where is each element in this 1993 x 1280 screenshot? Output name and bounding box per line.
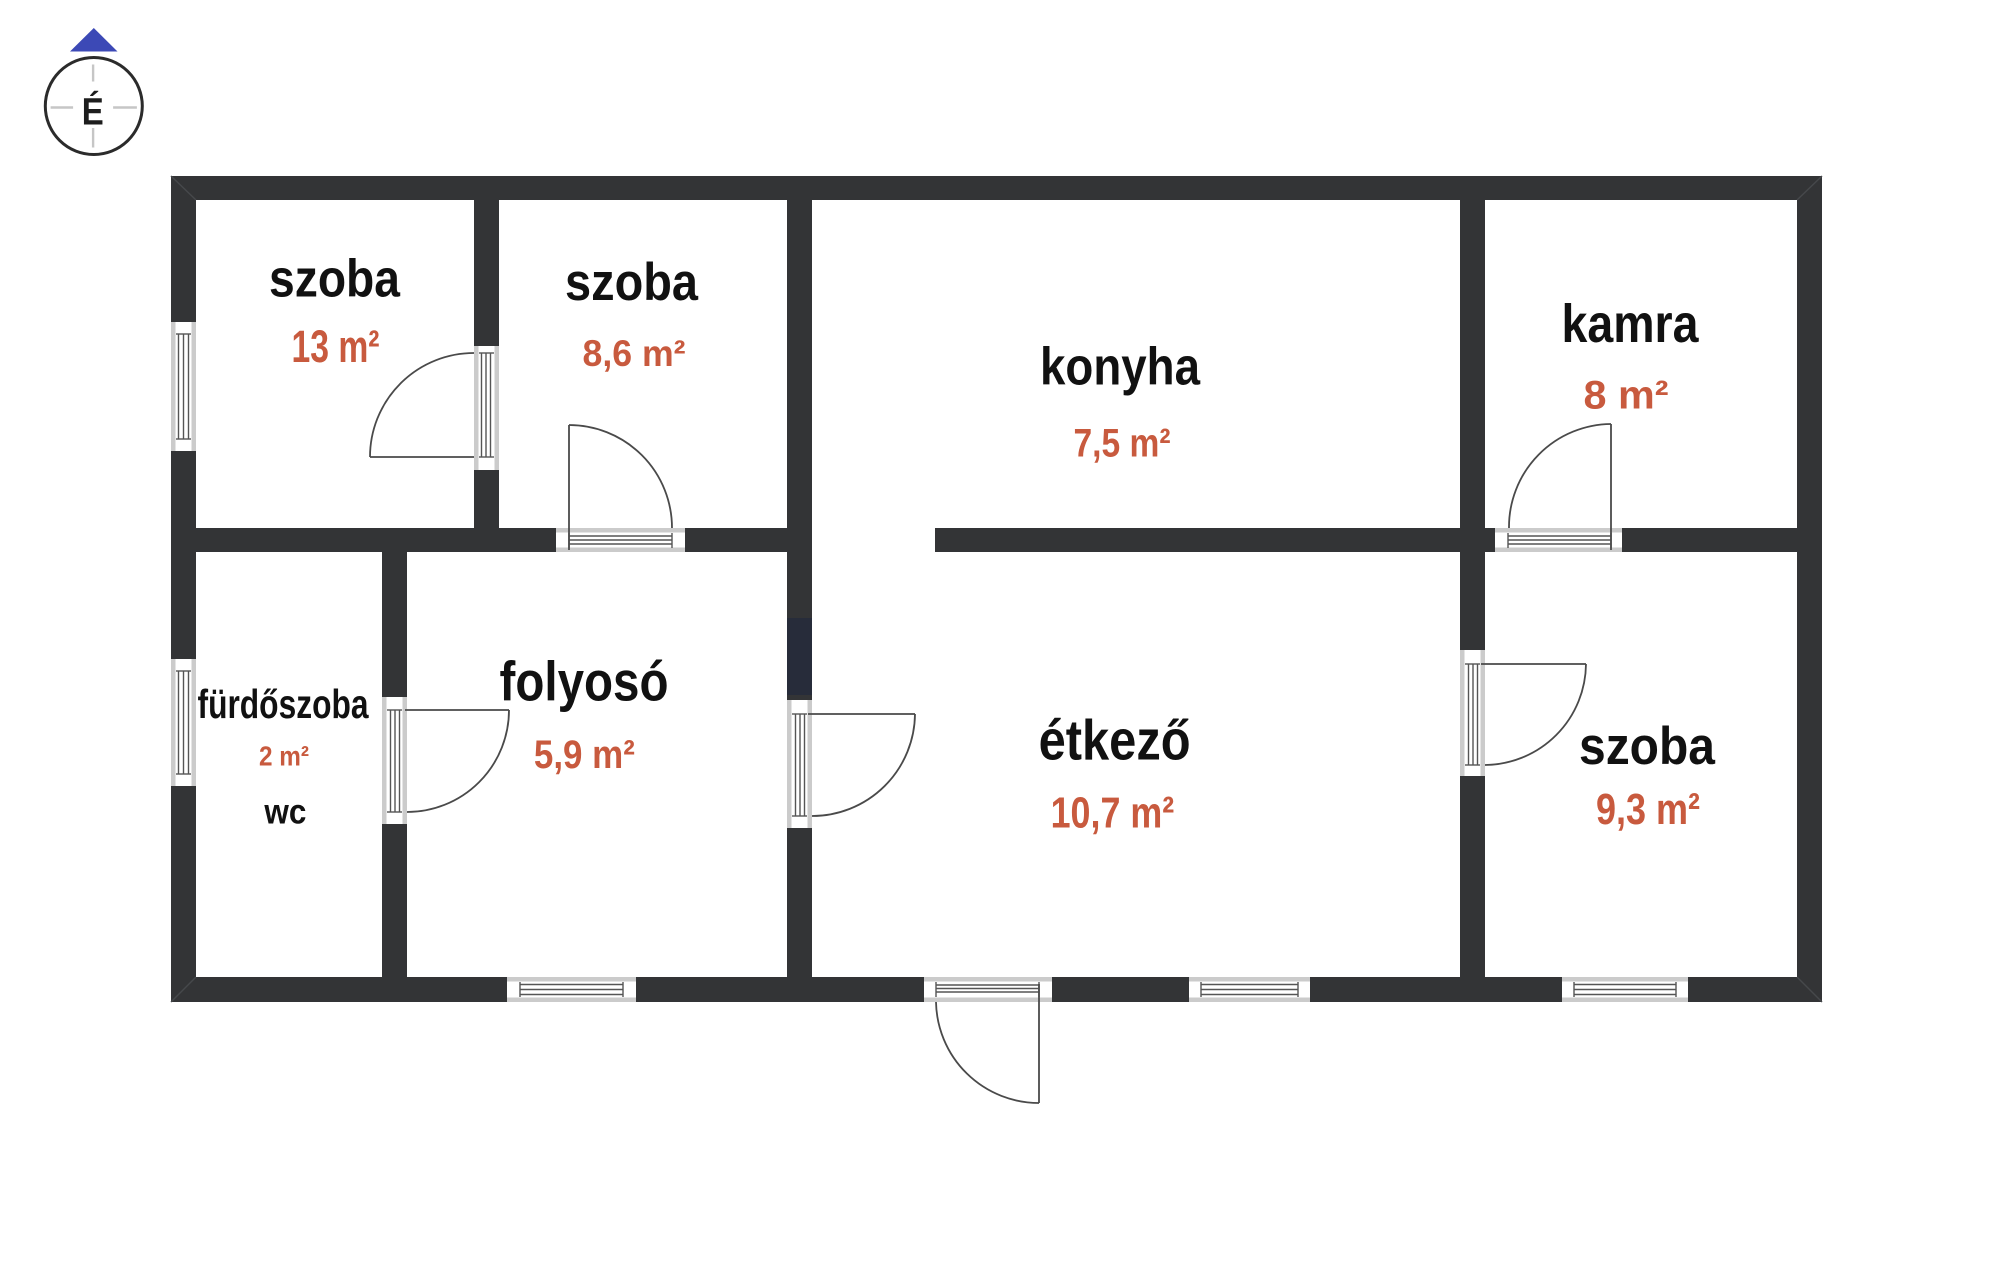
svg-text:7,5 m²: 7,5 m² xyxy=(1074,422,1171,466)
svg-text:8,6 m²: 8,6 m² xyxy=(583,333,686,374)
svg-text:5,9 m²: 5,9 m² xyxy=(534,733,635,777)
svg-text:É: É xyxy=(82,89,104,133)
svg-text:konyha: konyha xyxy=(1040,338,1200,397)
svg-text:szoba: szoba xyxy=(269,250,400,309)
svg-text:wc: wc xyxy=(264,792,307,831)
svg-text:2 m²: 2 m² xyxy=(259,740,309,771)
svg-text:szoba: szoba xyxy=(565,253,698,312)
svg-text:fürdőszoba: fürdőszoba xyxy=(198,681,370,727)
svg-text:8 m²: 8 m² xyxy=(1584,373,1669,417)
svg-text:13 m²: 13 m² xyxy=(292,321,380,372)
svg-text:folyosó: folyosó xyxy=(500,650,669,713)
svg-text:szoba: szoba xyxy=(1579,717,1715,776)
svg-text:kamra: kamra xyxy=(1562,294,1700,354)
svg-text:étkező: étkező xyxy=(1039,709,1191,773)
svg-text:10,7 m²: 10,7 m² xyxy=(1051,788,1175,837)
svg-text:9,3 m²: 9,3 m² xyxy=(1596,785,1700,834)
